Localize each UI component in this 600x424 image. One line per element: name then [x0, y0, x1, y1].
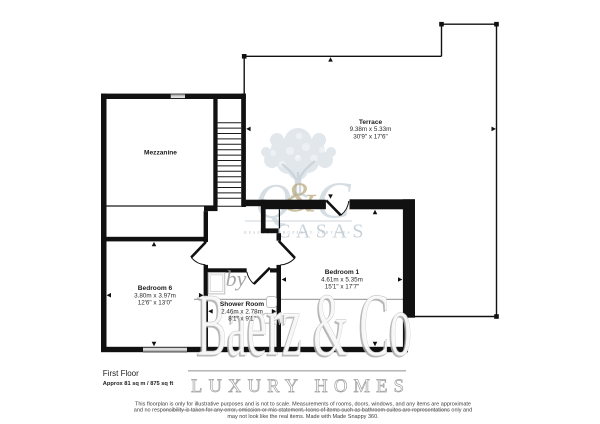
svg-text:Approx 81 sq m / 875 sq ft: Approx 81 sq m / 875 sq ft: [103, 381, 174, 387]
svg-text:12'6" x 13'0": 12'6" x 13'0": [138, 300, 173, 307]
svg-text:and no responsibility is taken: and no responsibility is taken for any e…: [134, 408, 472, 414]
svg-text:Baerz & Co: Baerz & Co: [197, 277, 412, 376]
svg-text:8'1" x 9'1": 8'1" x 9'1": [228, 316, 256, 323]
svg-text:This floorplan is only for ill: This floorplan is only for illustrative …: [135, 401, 471, 407]
svg-text:Bedroom 1: Bedroom 1: [325, 269, 360, 276]
svg-text:Terrace: Terrace: [359, 119, 383, 126]
svg-text:&: &: [284, 176, 317, 222]
svg-text:3.80m x 3.97m: 3.80m x 3.97m: [134, 292, 176, 299]
svg-text:2.46m x 2.78m: 2.46m x 2.78m: [221, 308, 263, 315]
svg-text:may not look like the real ite: may not look like the real items. Made w…: [227, 414, 379, 420]
svg-text:BESPOKE PROPERTY SERVICES: BESPOKE PROPERTY SERVICES: [244, 231, 351, 235]
svg-text:Mezzanine: Mezzanine: [144, 149, 177, 156]
svg-text:Bedroom 6: Bedroom 6: [138, 285, 173, 292]
svg-text:30'9" x 17'6": 30'9" x 17'6": [353, 133, 388, 140]
svg-text:LUXURY HOMES: LUXURY HOMES: [191, 377, 410, 397]
svg-text:First Floor: First Floor: [103, 369, 139, 378]
svg-text:9.38m x 5.33m: 9.38m x 5.33m: [350, 126, 392, 133]
svg-text:Shower Room: Shower Room: [220, 301, 264, 308]
